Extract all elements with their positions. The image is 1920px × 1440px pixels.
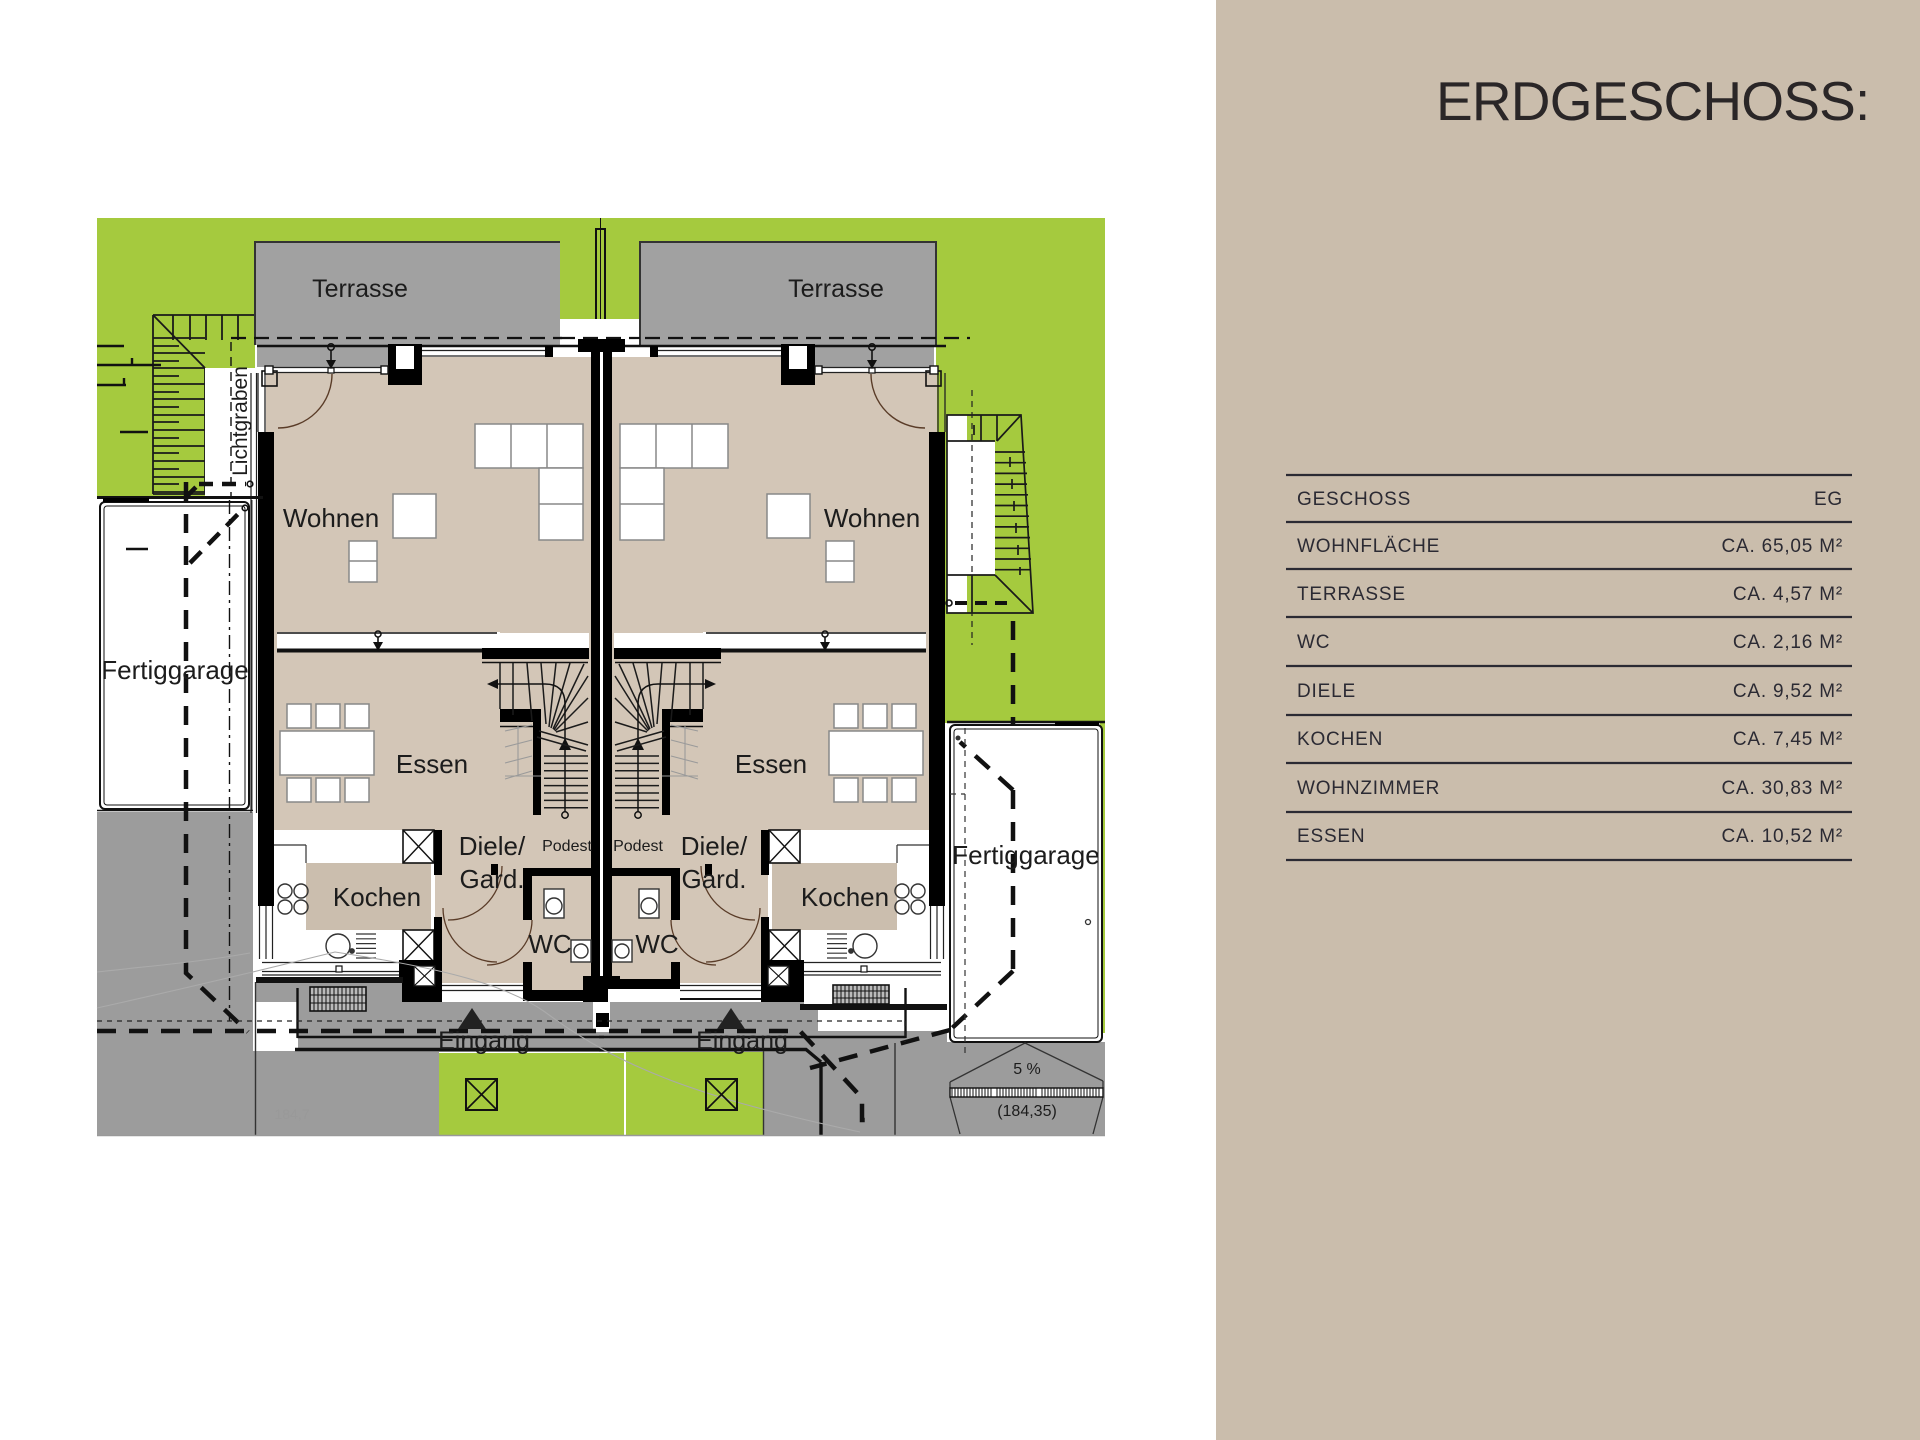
svg-text:WC: WC [1297,632,1330,653]
svg-text:Lichtgraben: Lichtgraben [229,366,252,476]
svg-text:DIELE: DIELE [1297,681,1356,702]
svg-text:5 %: 5 % [1013,1061,1041,1078]
svg-text:(184,35): (184,35) [997,1103,1057,1120]
svg-text:Terrasse: Terrasse [788,275,884,303]
svg-text:Essen: Essen [396,749,468,779]
svg-text:Gard.: Gard. [459,864,524,894]
svg-text:Eingang: Eingang [696,1027,788,1055]
svg-text:KOCHEN: KOCHEN [1297,729,1383,750]
svg-text:Fertiggarage: Fertiggarage [952,840,1099,870]
svg-text:WOHNFLÄCHE: WOHNFLÄCHE [1297,536,1440,557]
svg-text:Wohnen: Wohnen [824,503,920,533]
svg-text:CA. 9,52 M²: CA. 9,52 M² [1733,681,1843,702]
svg-text:GESCHOSS: GESCHOSS [1297,489,1411,510]
svg-text:Gard.: Gard. [681,864,746,894]
svg-text:Diele/: Diele/ [459,831,526,861]
svg-text:Terrasse: Terrasse [312,275,408,303]
svg-text:CA. 2,16 M²: CA. 2,16 M² [1733,632,1843,653]
svg-text:WC: WC [635,929,678,959]
svg-text:Essen: Essen [735,749,807,779]
svg-text:CA. 65,05 M²: CA. 65,05 M² [1721,536,1843,557]
svg-text:Kochen: Kochen [801,882,889,912]
svg-text:CA. 7,45 M²: CA. 7,45 M² [1733,729,1843,750]
svg-text:Wohnen: Wohnen [283,503,379,533]
svg-text:WC: WC [528,929,571,959]
svg-text:TERRASSE: TERRASSE [1297,584,1406,605]
svg-text:ERDGESCHOSS:: ERDGESCHOSS: [1436,70,1870,132]
svg-text:CA. 30,83 M²: CA. 30,83 M² [1721,778,1843,799]
svg-text:CA. 4,57 M²: CA. 4,57 M² [1733,584,1843,605]
svg-text:Diele/: Diele/ [681,831,748,861]
svg-text:Fertiggarage: Fertiggarage [101,655,248,685]
svg-text:EG: EG [1814,489,1843,510]
svg-text:Podest: Podest [542,838,592,855]
svg-text:CA. 10,52 M²: CA. 10,52 M² [1721,826,1843,847]
svg-text:Podest: Podest [613,838,663,855]
svg-text:Kochen: Kochen [333,882,421,912]
svg-text:184,7: 184,7 [274,1106,309,1122]
svg-text:WOHNZIMMER: WOHNZIMMER [1297,778,1440,799]
svg-text:Eingang: Eingang [438,1027,530,1055]
svg-text:ESSEN: ESSEN [1297,826,1365,847]
